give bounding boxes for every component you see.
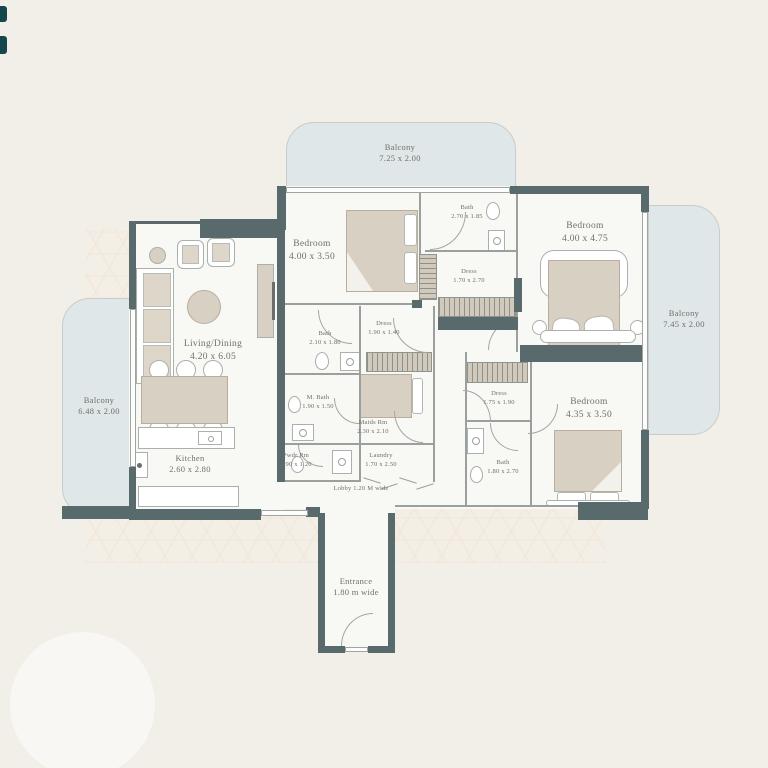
armchair [207,238,235,267]
balcony-name: Balcony [340,142,460,153]
room-name: Dress [355,320,413,329]
vanity [292,424,314,441]
lobby-text: Lobby 1.20 M wide [306,485,416,494]
room-label-bath-right: Bath 1.80 x 2.70 [474,459,532,477]
basin [346,358,354,366]
partition [285,480,359,482]
balcony-dims: 7.45 x 2.00 [649,319,719,330]
wall [510,186,648,194]
room-label-bedroom-top-left: Bedroom 4.00 x 3.50 [262,238,362,264]
room-name: Bath [474,459,532,468]
sofa-cushion [143,309,171,343]
room-dims: 4.20 x 6.05 [168,351,258,364]
toilet [315,352,329,370]
coffee-table [187,290,221,324]
balcony-name: Balcony [64,395,134,406]
background-circle [10,632,155,768]
pillow [412,378,423,414]
wardrobe [466,362,528,383]
basin [472,437,480,445]
entrance-annotation: Entrance 1.80 m wide [321,576,391,599]
wall [520,345,648,362]
vanity [467,428,484,454]
window-top [286,187,510,193]
room-dims: 1.70 x 2.50 [352,461,410,470]
room-name: Laundry [352,452,410,461]
room-name: Living/Dining [168,338,258,351]
tv-screen [272,282,275,320]
room-name: Bath [296,330,354,339]
room-dims: 1.90 x 1.50 [289,403,347,412]
room-name: Bedroom [534,396,644,409]
room-name: M. Bath [289,394,347,403]
partition [361,443,433,445]
room-name: Pwdr Rm [268,452,324,461]
wall [129,221,136,309]
room-dims: 4.00 x 4.75 [530,233,640,246]
kitchen-sink [198,431,222,445]
room-name: Kitchen [150,453,230,464]
room-label-powder-room: Pwdr Rm 1.90 x 1.20 [268,452,324,470]
partition [285,443,361,445]
dining-table [141,376,228,424]
wardrobe [438,297,516,317]
room-label-maids-room: Maids Rm 2.30 x 2.10 [344,419,402,437]
room-label-kitchen: Kitchen 2.60 x 2.80 [150,453,230,476]
room-dims: 1.70 x 2.70 [440,277,498,286]
room-label-master-bath: M. Bath 1.90 x 1.50 [289,394,347,412]
entrance-name: Entrance [321,576,391,587]
room-label-dress-top: Dress 1.70 x 2.70 [440,268,498,286]
room-label-bedroom-bottom-right: Bedroom 4.35 x 3.50 [534,396,644,422]
vanity [488,230,505,252]
balcony-name: Balcony [649,308,719,319]
room-label-laundry: Laundry 1.70 x 2.50 [352,452,410,470]
faucet [208,436,214,442]
basin [493,237,501,245]
partition [419,192,421,254]
bed-bench [540,330,636,343]
wall-living-divider [277,228,285,482]
room-label-dress-right: Dress 1.75 x 1.90 [470,390,528,408]
lobby-annotation: Lobby 1.20 M wide [306,485,416,494]
basin [299,429,307,437]
balcony-left-label: Balcony 6.48 x 2.00 [64,395,134,418]
balcony-top-label: Balcony 7.25 x 2.00 [340,142,460,165]
window-entry-threshold [345,647,368,652]
wall [62,506,132,519]
armchair-seat [182,245,199,264]
room-label-living-dining: Living/Dining 4.20 x 6.05 [168,338,258,364]
wall [578,502,648,520]
room-name: Bedroom [530,220,640,233]
fridge-handle [137,463,142,468]
room-label-bath-top: Bath 2.70 x 1.85 [438,204,496,222]
floor-plan: Balcony 7.25 x 2.00 Balcony 7.45 x 2.00 … [0,0,768,768]
wall [277,186,286,230]
room-dims: 4.35 x 3.50 [534,409,644,422]
wall [368,646,395,653]
room-dims: 1.90 x 1.20 [268,461,324,470]
vanity [340,352,360,371]
partition [465,352,467,507]
room-label-bedroom-top-right: Bedroom 4.00 x 4.75 [530,220,640,246]
room-dims: 2.30 x 2.10 [344,428,402,437]
wall [129,221,202,224]
logo-mark-bottom [0,36,7,54]
room-dims: 1.75 x 1.90 [470,399,528,408]
partition [433,306,435,482]
wall [412,300,422,308]
room-name: Dress [470,390,528,399]
wall [514,278,522,312]
room-name: Maids Rm [344,419,402,428]
room-label-dress-middle: Dress 1.90 x 1.40 [355,320,413,338]
wall [438,317,518,330]
partition [285,373,361,375]
room-dims: 2.10 x 1.80 [296,339,354,348]
sofa-cushion [143,273,171,307]
side-table [149,247,166,264]
pillow [404,214,417,246]
room-name: Dress [440,268,498,277]
vanity [332,450,352,474]
room-dims: 2.70 x 1.85 [438,213,496,222]
partition [285,303,420,305]
partition [425,250,516,252]
entrance-dims: 1.80 m wide [321,587,391,598]
wardrobe [366,352,432,372]
kitchen-counter [138,486,239,507]
logo-mark-top [0,6,7,22]
partition [395,505,578,507]
wall [129,509,261,520]
wall [200,219,285,238]
wardrobe [419,254,437,300]
room-label-bath-middle: Bath 2.10 x 1.80 [296,330,354,348]
room-dims: 4.00 x 3.50 [262,251,362,264]
basin [338,458,346,466]
balcony-dims: 6.48 x 2.00 [64,406,134,417]
window-kitchen [261,510,308,516]
pillow [404,252,417,284]
wall [641,430,649,509]
room-dims: 2.60 x 2.80 [150,464,230,475]
wall [318,646,345,653]
room-dims: 1.80 x 2.70 [474,468,532,477]
balcony-dims: 7.25 x 2.00 [340,153,460,164]
window-left [130,309,136,467]
room-dims: 1.90 x 1.40 [355,329,413,338]
room-name: Bath [438,204,496,213]
armchair [177,240,204,269]
wall [641,186,649,212]
armchair-seat [212,243,230,262]
room-name: Bedroom [262,238,362,251]
balcony-right-label: Balcony 7.45 x 2.00 [649,308,719,331]
